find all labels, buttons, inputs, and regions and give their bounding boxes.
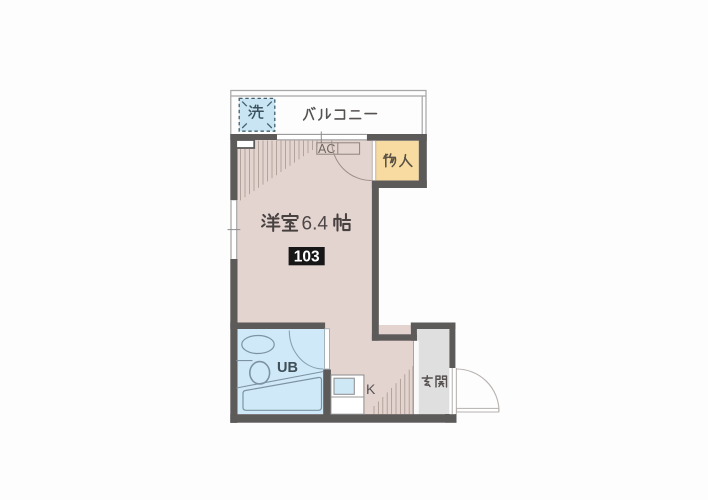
svg-text:UB: UB xyxy=(277,360,298,376)
svg-text:K: K xyxy=(366,381,376,397)
svg-text:6.4: 6.4 xyxy=(302,214,329,235)
svg-text:103: 103 xyxy=(294,249,320,266)
